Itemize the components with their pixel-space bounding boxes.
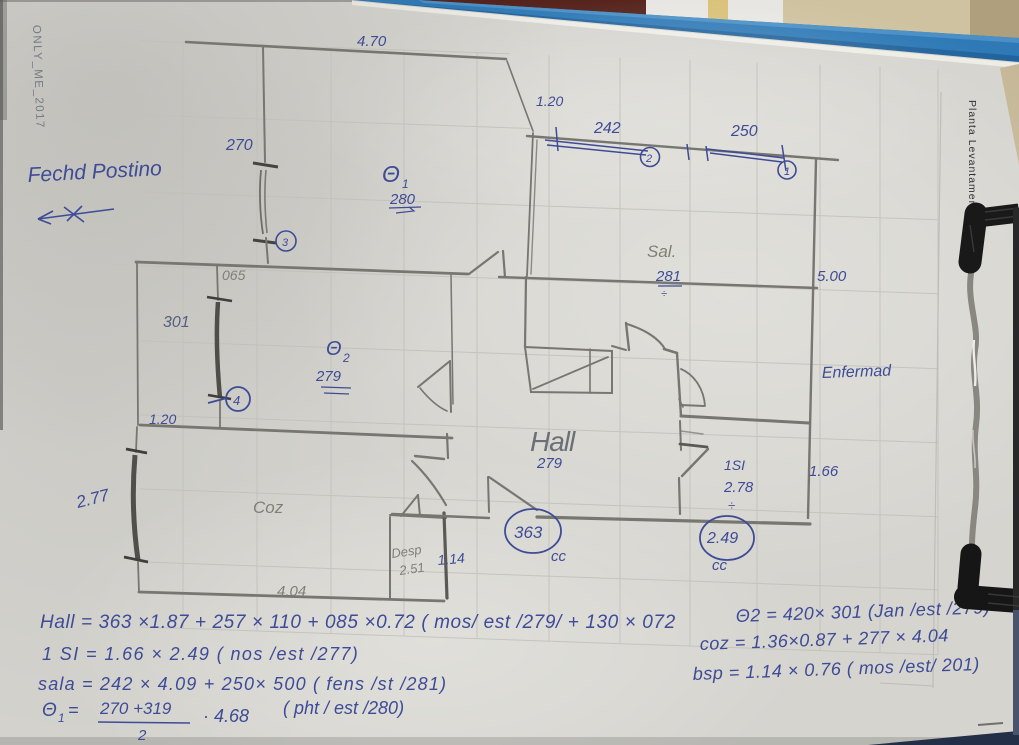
svg-text:Hall: Hall bbox=[530, 426, 576, 457]
svg-text:Coz: Coz bbox=[253, 498, 284, 517]
svg-text:÷: ÷ bbox=[728, 498, 735, 513]
svg-text:Planta Levantamento: Planta Levantamento bbox=[966, 100, 978, 218]
svg-text:Θ: Θ bbox=[382, 161, 400, 187]
svg-text:270 +319: 270 +319 bbox=[99, 699, 172, 718]
svg-text:Enfermad: Enfermad bbox=[822, 363, 893, 382]
svg-text:cc: cc bbox=[712, 557, 728, 574]
svg-text:÷: ÷ bbox=[661, 288, 667, 300]
svg-text:2: 2 bbox=[137, 727, 147, 744]
svg-text:1.20: 1.20 bbox=[149, 411, 176, 427]
svg-text:=: = bbox=[68, 700, 79, 720]
svg-text:Θ: Θ bbox=[42, 700, 57, 721]
svg-text:2: 2 bbox=[342, 351, 350, 365]
svg-text:1.14: 1.14 bbox=[437, 550, 466, 568]
svg-text:4.04: 4.04 bbox=[277, 583, 306, 600]
svg-text:1SI: 1SI bbox=[724, 457, 745, 473]
svg-text:242: 242 bbox=[593, 120, 621, 137]
svg-text:Hall = 363 ×1.87 + 257 × 110 +: Hall = 363 ×1.87 + 257 × 110 + 085 ×0.72… bbox=[40, 612, 676, 633]
svg-text:2.49: 2.49 bbox=[706, 530, 738, 547]
svg-text:1.20: 1.20 bbox=[536, 93, 563, 109]
svg-text:· 4.68: · 4.68 bbox=[203, 706, 249, 726]
svg-text:1: 1 bbox=[402, 177, 409, 191]
svg-text:279: 279 bbox=[536, 455, 563, 472]
svg-text:2: 2 bbox=[645, 153, 652, 165]
svg-text:250: 250 bbox=[730, 123, 758, 140]
svg-text:Sal.: Sal. bbox=[647, 242, 676, 261]
svg-text:cc: cc bbox=[551, 548, 567, 565]
svg-text:1: 1 bbox=[784, 166, 790, 178]
svg-text:1.66: 1.66 bbox=[809, 463, 839, 480]
svg-text:1 SI = 1.66 × 2.49 ( nos /est: 1 SI = 1.66 × 2.49 ( nos /est /277) bbox=[42, 644, 359, 664]
svg-text:4.70: 4.70 bbox=[357, 33, 387, 50]
svg-text:281: 281 bbox=[655, 268, 681, 285]
svg-text:270: 270 bbox=[225, 137, 253, 154]
svg-text:3: 3 bbox=[282, 237, 289, 249]
svg-text:4: 4 bbox=[233, 393, 240, 408]
svg-text:5.00: 5.00 bbox=[817, 268, 847, 285]
svg-text:2.78: 2.78 bbox=[723, 479, 754, 496]
svg-text:301: 301 bbox=[163, 314, 190, 331]
svg-text:280: 280 bbox=[389, 191, 416, 208]
svg-text:Θ: Θ bbox=[326, 338, 342, 360]
svg-text:( pht / est /280): ( pht / est /280) bbox=[283, 698, 404, 718]
svg-text:1: 1 bbox=[58, 711, 65, 725]
svg-text:279: 279 bbox=[315, 368, 342, 385]
svg-text:363: 363 bbox=[514, 523, 543, 542]
svg-text:sala = 242 × 4.09 + 250× 500 (: sala = 242 × 4.09 + 250× 500 ( fens /st … bbox=[38, 674, 447, 694]
svg-text:065: 065 bbox=[222, 267, 246, 283]
